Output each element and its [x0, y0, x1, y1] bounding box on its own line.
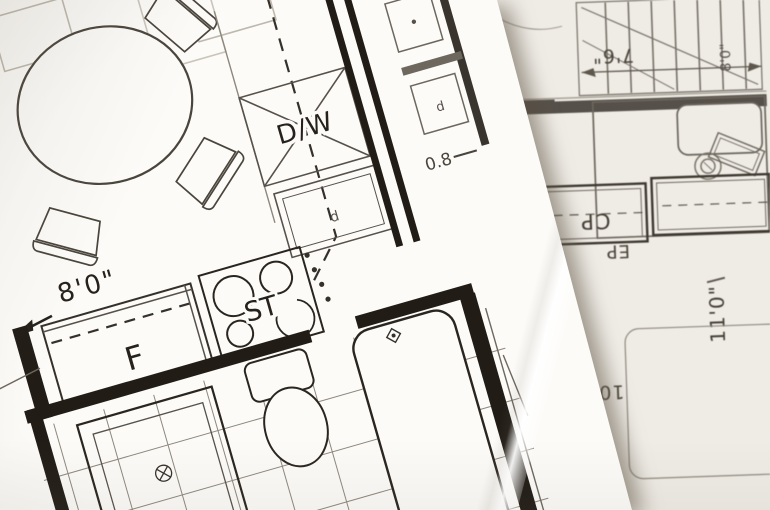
small-closet: d 0.8: [378, 0, 493, 176]
floorplan-photo: 7'6" 8'0" CP EP: [0, 0, 770, 510]
dishwasher-label: D/W: [273, 107, 337, 152]
shower-drain-icon: [154, 463, 174, 483]
stove-label: ST: [241, 290, 282, 329]
svg-text:8'0": 8'0": [54, 264, 120, 309]
burner: [256, 258, 296, 298]
shower: [77, 387, 250, 510]
top-sheet-wrap: D/W d: [0, 0, 770, 510]
top-floorplan-sheet: D/W d: [0, 0, 770, 510]
closet-width-label: 0.8: [423, 149, 455, 176]
dining-set: [0, 0, 275, 295]
chair: [31, 206, 106, 267]
dimension-kitchen-width: 8'0": [2, 264, 123, 336]
refrigerator-label: F: [121, 337, 149, 379]
top-plan-drawing: D/W d: [0, 0, 770, 510]
svg-text:d: d: [434, 99, 446, 116]
chair: [172, 132, 246, 212]
door-small-label: d: [328, 208, 341, 226]
toilet: [243, 347, 337, 475]
